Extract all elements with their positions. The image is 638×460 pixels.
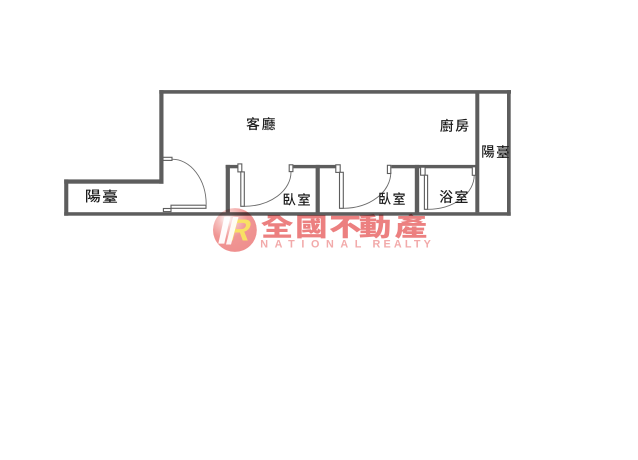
- svg-text:REALTY: REALTY: [373, 239, 435, 251]
- svg-text:NATIONAL: NATIONAL: [260, 239, 368, 251]
